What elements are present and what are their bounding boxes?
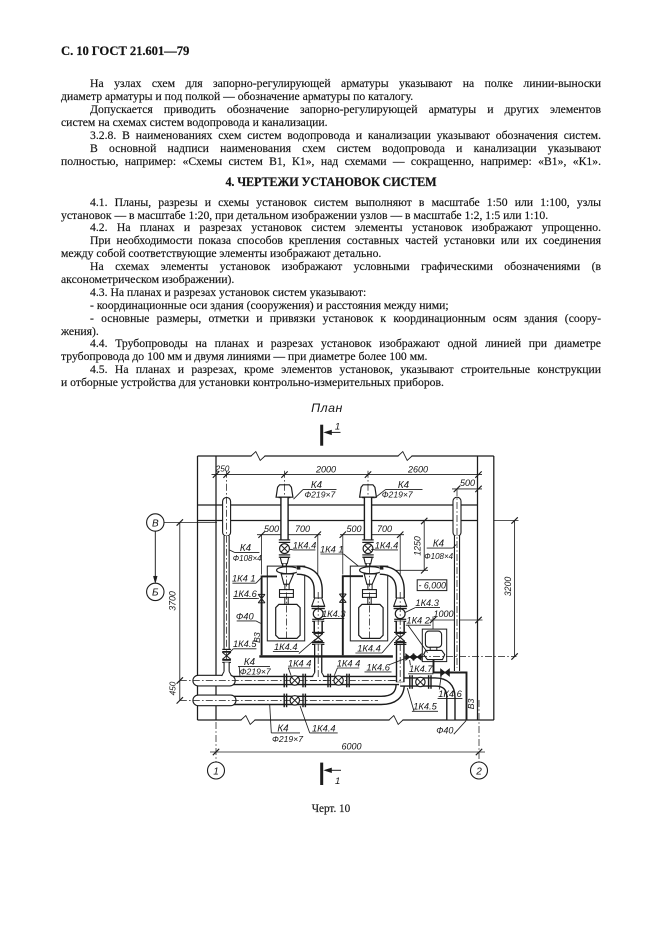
svg-text:500: 500 bbox=[460, 478, 475, 488]
svg-text:1250: 1250 bbox=[412, 536, 422, 556]
svg-text:1000: 1000 bbox=[433, 609, 453, 619]
svg-text:Ф219×7: Ф219×7 bbox=[382, 490, 414, 500]
svg-text:3200: 3200 bbox=[503, 577, 513, 597]
svg-text:1К4.6: 1К4.6 bbox=[366, 662, 390, 672]
svg-text:1: 1 bbox=[213, 766, 219, 777]
svg-text:1К4.3: 1К4.3 bbox=[415, 598, 439, 608]
svg-text:1К4.6: 1К4.6 bbox=[438, 689, 462, 699]
svg-text:Ф40: Ф40 bbox=[436, 725, 453, 735]
svg-text:1К4 1: 1К4 1 bbox=[232, 574, 256, 584]
svg-text:1К4 2: 1К4 2 bbox=[406, 616, 430, 626]
svg-text:1К4.4: 1К4.4 bbox=[274, 642, 298, 652]
svg-text:1К4.7: 1К4.7 bbox=[409, 664, 433, 674]
svg-text:1К4.4: 1К4.4 bbox=[375, 540, 399, 550]
svg-text:6000: 6000 bbox=[341, 742, 361, 752]
svg-text:1К4 1: 1К4 1 bbox=[320, 544, 344, 554]
svg-text:1К4.4: 1К4.4 bbox=[293, 540, 317, 550]
svg-text:700: 700 bbox=[295, 524, 310, 534]
svg-text:1К4.6: 1К4.6 bbox=[233, 589, 257, 599]
svg-text:1К4.5: 1К4.5 bbox=[413, 702, 437, 712]
svg-text:2600: 2600 bbox=[407, 464, 428, 474]
svg-text:1К4 4: 1К4 4 bbox=[337, 658, 361, 668]
svg-text:План: План bbox=[311, 401, 343, 415]
svg-text:700: 700 bbox=[377, 524, 392, 534]
svg-text:2000: 2000 bbox=[315, 464, 336, 474]
svg-text:2: 2 bbox=[475, 766, 482, 777]
svg-text:Ф40: Ф40 bbox=[236, 611, 255, 621]
svg-text:Ф219×7: Ф219×7 bbox=[240, 667, 272, 677]
svg-text:Ф108×4: Ф108×4 bbox=[424, 552, 453, 561]
svg-text:3700: 3700 bbox=[168, 591, 178, 611]
svg-text:250: 250 bbox=[215, 463, 230, 473]
svg-text:450: 450 bbox=[168, 681, 178, 695]
svg-text:Ф219×7: Ф219×7 bbox=[304, 489, 336, 499]
svg-text:1К4 4: 1К4 4 bbox=[288, 658, 312, 668]
svg-text:Ф219×7: Ф219×7 bbox=[272, 734, 304, 744]
svg-text:1К4.3: 1К4.3 bbox=[322, 609, 346, 619]
svg-text:В3: В3 bbox=[466, 699, 476, 710]
svg-text:1К4.4: 1К4.4 bbox=[357, 643, 381, 653]
svg-text:1: 1 bbox=[335, 421, 340, 432]
svg-text:В3: В3 bbox=[252, 632, 262, 643]
svg-text:500: 500 bbox=[346, 524, 361, 534]
svg-text:- 6,000: - 6,000 bbox=[419, 580, 446, 590]
svg-text:В: В bbox=[152, 518, 159, 529]
svg-text:1: 1 bbox=[335, 776, 340, 787]
svg-text:Б: Б bbox=[152, 588, 159, 599]
svg-text:1К4.4: 1К4.4 bbox=[312, 723, 336, 733]
svg-text:Ф108×4: Ф108×4 bbox=[233, 554, 262, 563]
svg-text:500: 500 bbox=[264, 524, 279, 534]
